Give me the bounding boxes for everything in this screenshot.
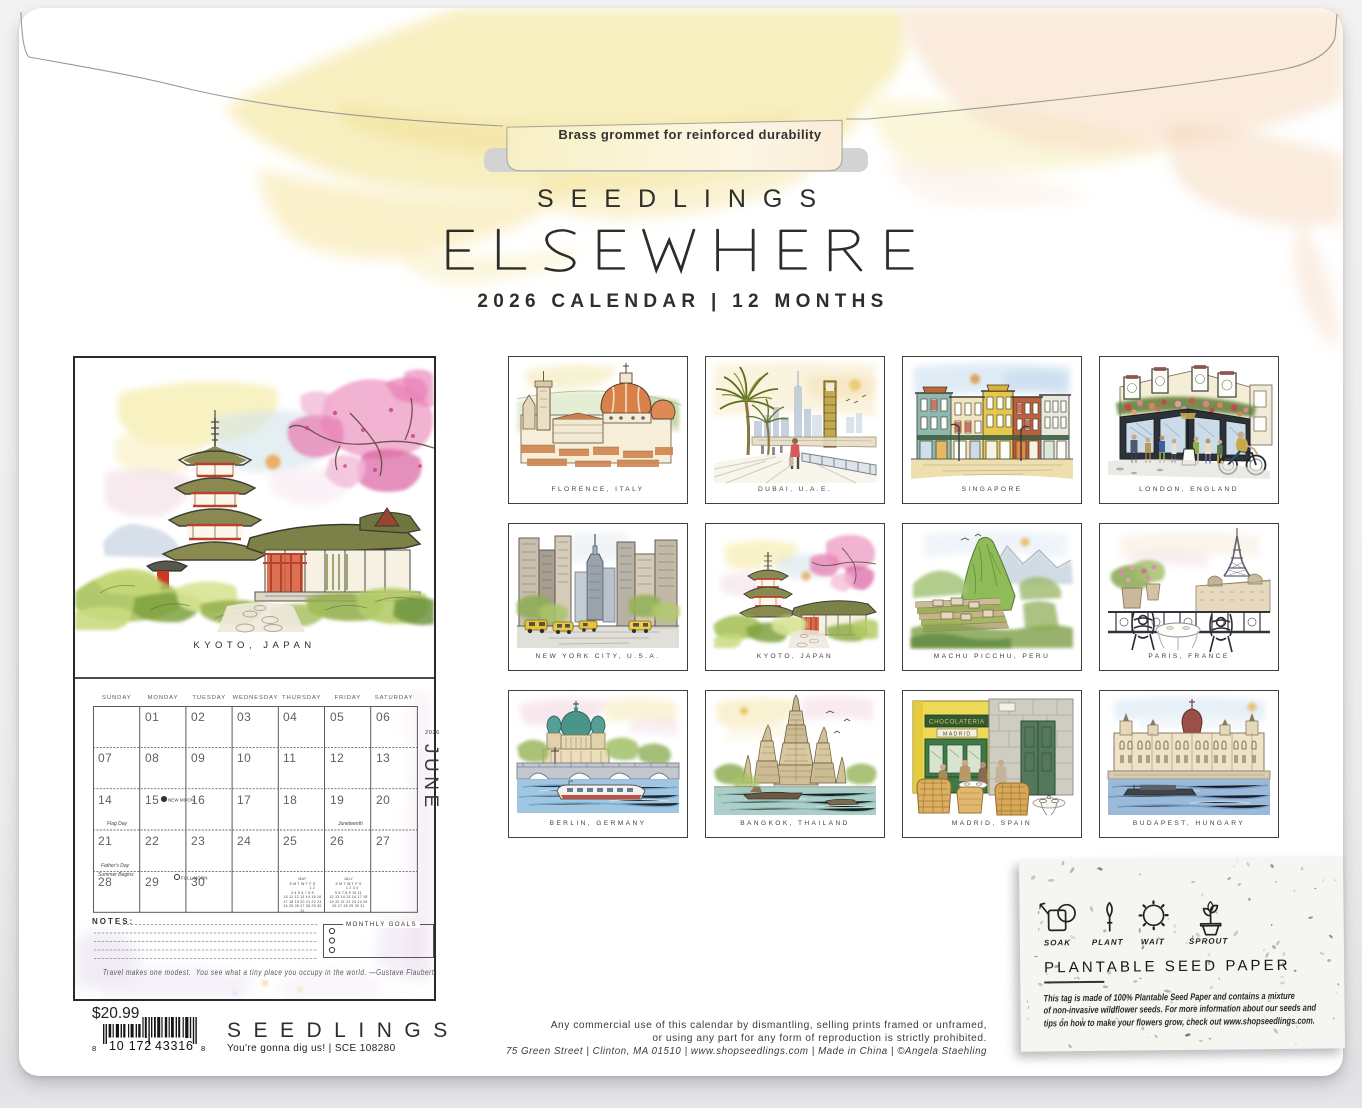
svg-text:MADRID: MADRID <box>943 732 971 738</box>
svg-text:8: 8 <box>92 1044 96 1053</box>
svg-text:43316: 43316 <box>155 1039 194 1053</box>
svg-text:CHOCOLATERIA: CHOCOLATERIA <box>929 719 985 726</box>
svg-text:8: 8 <box>201 1044 205 1053</box>
svg-text:10 172: 10 172 <box>109 1039 152 1053</box>
